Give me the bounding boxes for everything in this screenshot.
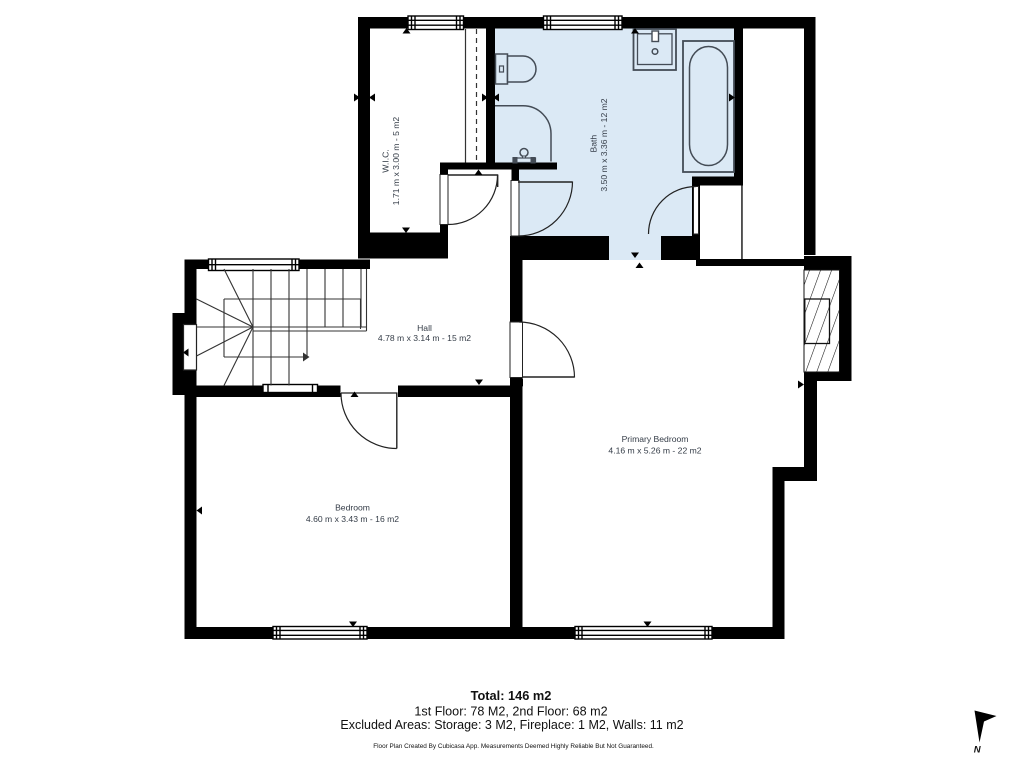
svg-text:Primary Bedroom: Primary Bedroom xyxy=(622,434,689,444)
svg-text:1.71 m x 3.00 m - 5 m2: 1.71 m x 3.00 m - 5 m2 xyxy=(391,117,401,206)
svg-text:4.78 m x 3.14 m - 15 m2: 4.78 m x 3.14 m - 15 m2 xyxy=(378,333,471,343)
svg-text:Floor Plan Created By Cubicasa: Floor Plan Created By Cubicasa App. Meas… xyxy=(373,743,654,750)
svg-text:4.16 m x 5.26 m - 22 m2: 4.16 m x 5.26 m - 22 m2 xyxy=(608,446,701,456)
svg-text:4.60 m x 3.43 m - 16 m2: 4.60 m x 3.43 m - 16 m2 xyxy=(306,514,399,524)
svg-text:Hall: Hall xyxy=(417,323,432,333)
svg-text:N: N xyxy=(974,745,982,756)
svg-text:Bedroom: Bedroom xyxy=(335,503,370,513)
svg-text:Bath: Bath xyxy=(589,135,599,153)
svg-text:1st Floor: 78 M2, 2nd Floor: 6: 1st Floor: 78 M2, 2nd Floor: 68 m2 xyxy=(414,705,607,719)
svg-text:W.I.C.: W.I.C. xyxy=(381,149,391,172)
svg-text:3.50 m x 3.36 m - 12 m2: 3.50 m x 3.36 m - 12 m2 xyxy=(599,98,609,191)
svg-text:Excluded Areas: Storage: 3 M2,: Excluded Areas: Storage: 3 M2, Fireplace… xyxy=(340,718,683,732)
svg-text:Total: 146 m2: Total: 146 m2 xyxy=(471,688,552,703)
